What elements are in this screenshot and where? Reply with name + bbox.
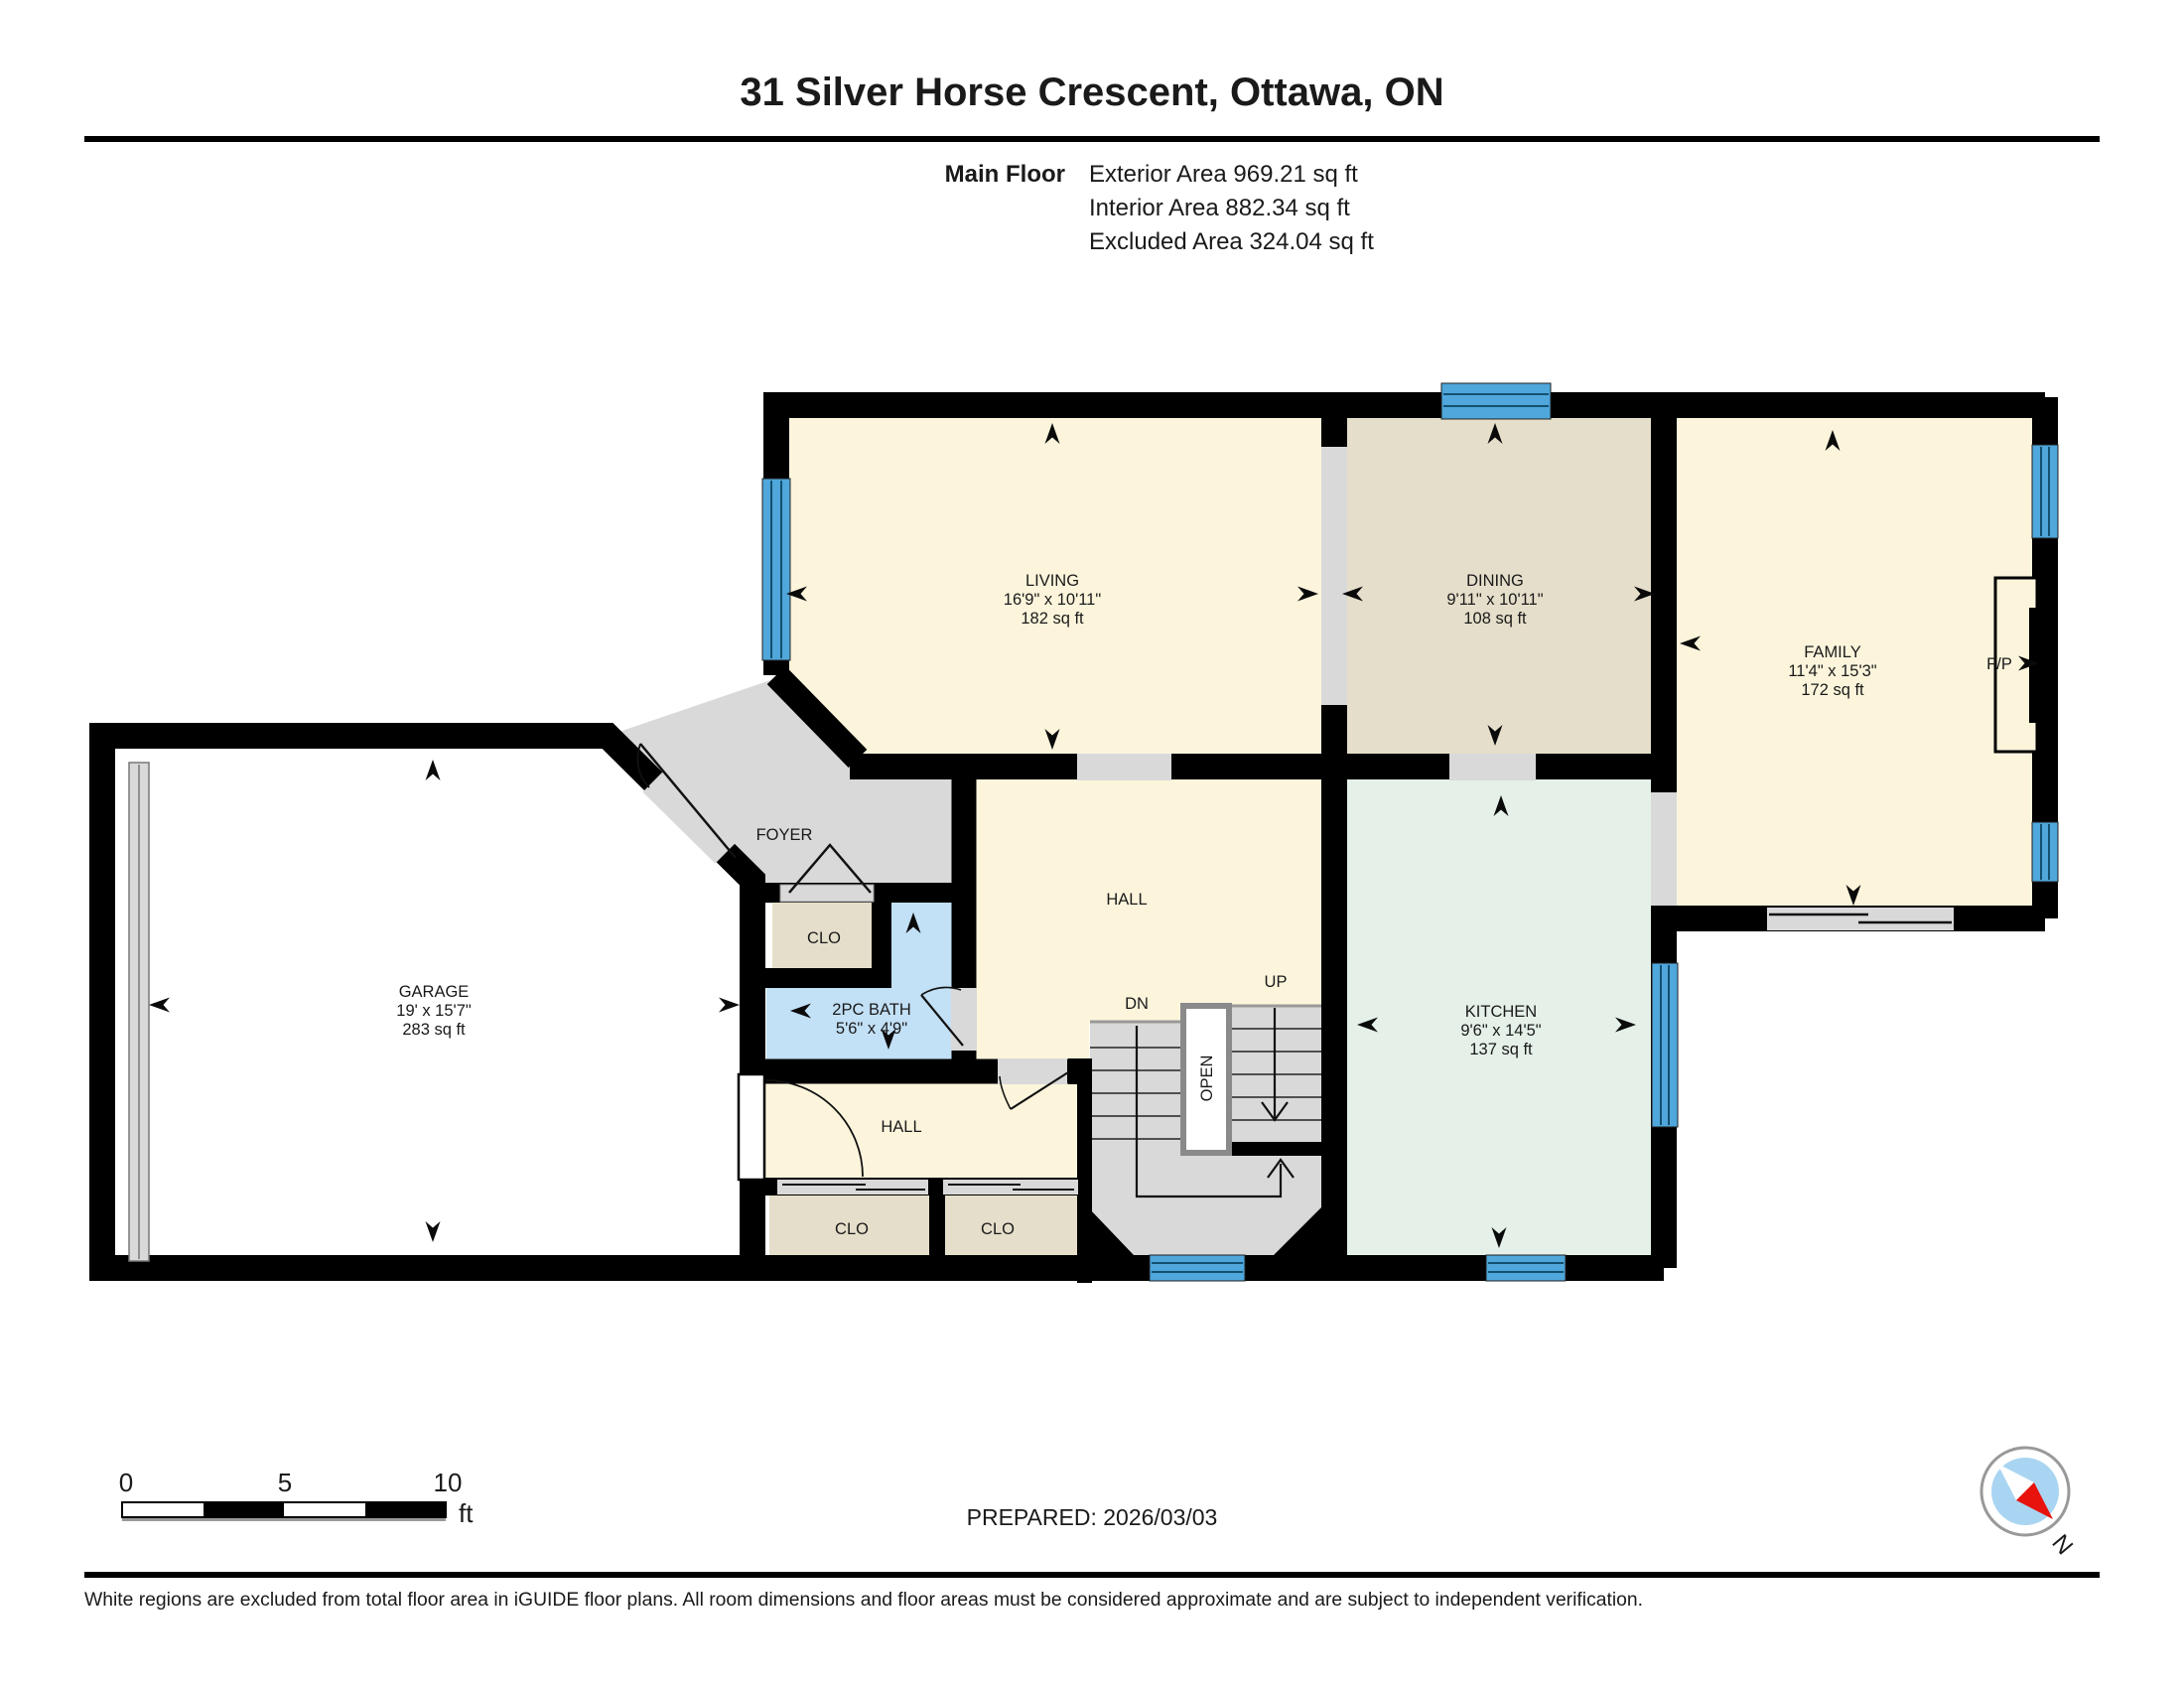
stairwell-wall xyxy=(1077,1058,1092,1283)
svg-text:5'6" x 4'9": 5'6" x 4'9" xyxy=(836,1020,907,1038)
svg-text:108 sq ft: 108 sq ft xyxy=(1463,610,1527,628)
garage-door xyxy=(129,763,149,1261)
scale-0: 0 xyxy=(119,1468,133,1497)
svg-text:2PC BATH: 2PC BATH xyxy=(832,1001,910,1019)
opening-living-dining xyxy=(1321,447,1347,705)
floor-label: Main Floor xyxy=(945,161,1065,188)
hall-lower-label: HALL xyxy=(881,1118,921,1136)
hall-upper-label: HALL xyxy=(1106,891,1147,909)
window-kitchen-south xyxy=(1486,1255,1566,1281)
window-dining-north xyxy=(1441,383,1551,419)
header-divider xyxy=(84,136,2100,142)
kitchen-label: KITCHEN 9'6" x 14'5" 137 sq ft xyxy=(1460,1003,1541,1058)
window-family-east-lower xyxy=(2032,822,2058,882)
foyer-label: FOYER xyxy=(756,826,813,844)
opening-living-hall xyxy=(1077,754,1171,780)
svg-text:283 sq ft: 283 sq ft xyxy=(402,1021,466,1039)
window-family-east-upper xyxy=(2032,445,2058,538)
room-fills xyxy=(102,405,2045,1271)
svg-text:DINING: DINING xyxy=(1466,572,1524,590)
compass: N xyxy=(1981,1448,2078,1560)
svg-text:LIVING: LIVING xyxy=(1025,572,1079,590)
fireplace-label: F/P xyxy=(1986,655,2012,673)
bath-label: 2PC BATH 5'6" x 4'9" xyxy=(832,1001,910,1038)
floor-summary: Main Floor Exterior Area 969.21 sq ft In… xyxy=(945,161,1375,255)
svg-text:172 sq ft: 172 sq ft xyxy=(1801,681,1864,699)
prepared-date: PREPARED: 2026/03/03 xyxy=(967,1504,1218,1530)
page-title: 31 Silver Horse Crescent, Ottawa, ON xyxy=(740,70,1443,114)
clo-foyer-label: CLO xyxy=(807,929,841,947)
svg-text:FAMILY: FAMILY xyxy=(1804,643,1860,661)
closet-slider-left xyxy=(777,1180,928,1195)
scale-bar: 0 5 10 ft xyxy=(119,1468,474,1528)
opening-kitchen-family xyxy=(1651,792,1677,906)
scale-10: 10 xyxy=(434,1468,463,1497)
exterior-area: Exterior Area 969.21 sq ft xyxy=(1089,161,1358,188)
excluded-area: Excluded Area 324.04 sq ft xyxy=(1089,228,1374,255)
scale-5: 5 xyxy=(278,1468,292,1497)
dn-label: DN xyxy=(1125,995,1149,1013)
opening-dining-kitchen xyxy=(1449,754,1536,780)
window-living-west xyxy=(762,479,790,660)
open-label: OPEN xyxy=(1198,1055,1216,1102)
svg-text:19' x 15'7": 19' x 15'7" xyxy=(396,1002,472,1020)
svg-text:KITCHEN: KITCHEN xyxy=(1465,1003,1537,1021)
up-label: UP xyxy=(1265,973,1288,991)
patio-sliding-door xyxy=(1767,908,1954,930)
svg-text:137 sq ft: 137 sq ft xyxy=(1469,1041,1533,1058)
compass-north-label: N xyxy=(2046,1530,2078,1561)
interior-area: Interior Area 882.34 sq ft xyxy=(1089,195,1350,221)
svg-text:16'9" x 10'11": 16'9" x 10'11" xyxy=(1004,591,1102,609)
window-kitchen-east xyxy=(1652,963,1678,1127)
svg-text:9'6" x 14'5": 9'6" x 14'5" xyxy=(1460,1022,1541,1040)
window-landing-south xyxy=(1150,1255,1245,1281)
clo-left-label: CLO xyxy=(835,1220,869,1238)
stairs-landing xyxy=(1090,1144,1321,1255)
svg-text:182 sq ft: 182 sq ft xyxy=(1021,610,1084,628)
clo-right-label: CLO xyxy=(981,1220,1015,1238)
scale-unit: ft xyxy=(459,1498,474,1528)
svg-text:GARAGE: GARAGE xyxy=(399,983,470,1001)
svg-text:11'4" x 15'3": 11'4" x 15'3" xyxy=(1788,662,1876,680)
footer-divider xyxy=(84,1572,2100,1578)
svg-text:9'11" x 10'11": 9'11" x 10'11" xyxy=(1446,591,1543,609)
garage-label: GARAGE 19' x 15'7" 283 sq ft xyxy=(396,983,472,1039)
floorplan-page: 31 Silver Horse Crescent, Ottawa, ON Mai… xyxy=(0,0,2184,1688)
closet-slider-right xyxy=(943,1180,1078,1195)
disclaimer-text: White regions are excluded from total fl… xyxy=(84,1590,1643,1611)
